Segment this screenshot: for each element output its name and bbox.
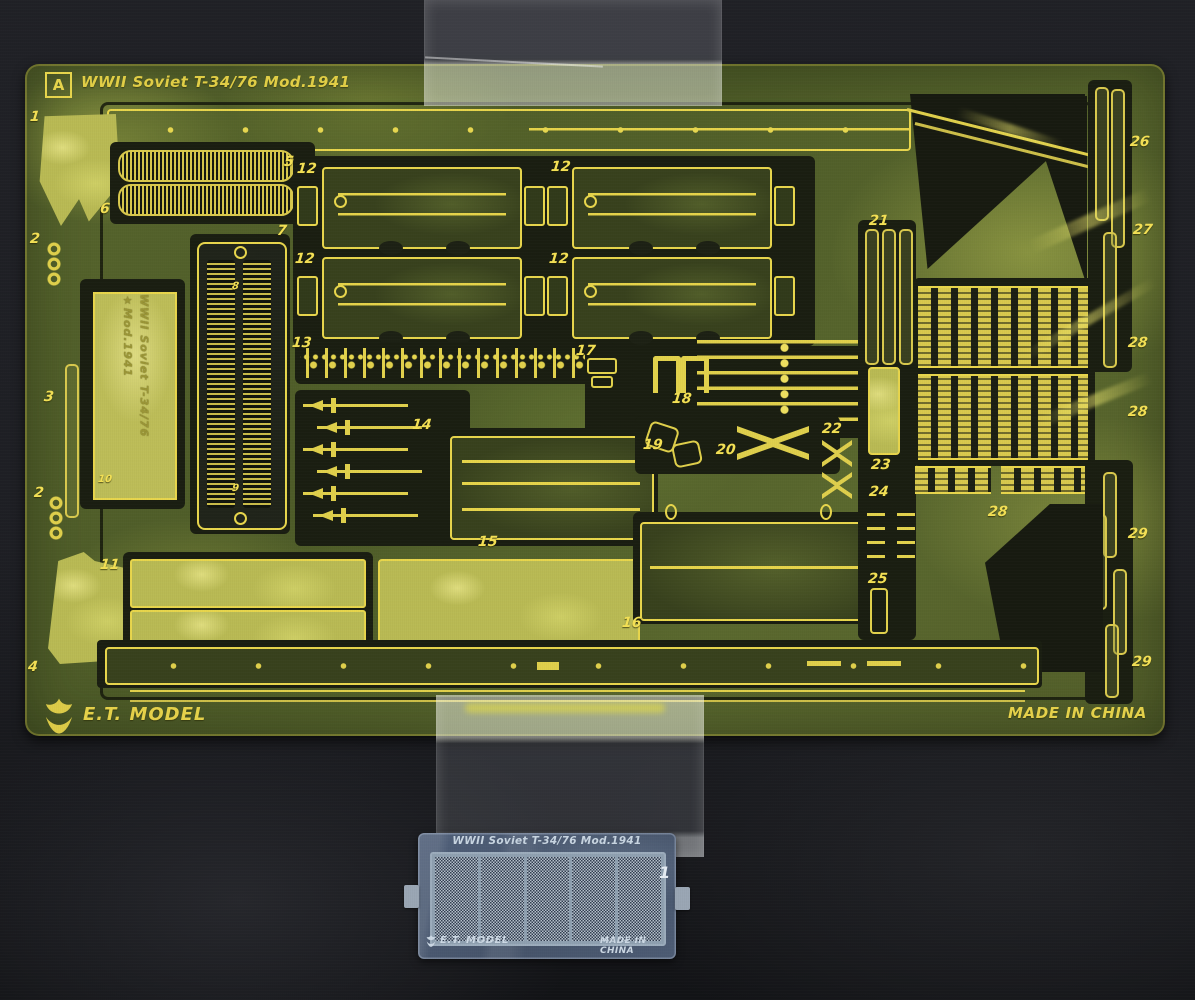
hinge-bracket-part bbox=[774, 186, 795, 226]
part-number-label: 21 bbox=[868, 213, 889, 229]
track-grouser-strips-part bbox=[1001, 466, 1087, 494]
part-number-label: 12 bbox=[550, 159, 571, 175]
grille-slats bbox=[243, 260, 271, 508]
part-number-label: 14 bbox=[411, 417, 432, 433]
part-number-label: 12 bbox=[294, 251, 315, 267]
track-grouser-strips-part bbox=[915, 466, 991, 494]
hatch-panel-part bbox=[450, 436, 654, 540]
part-number-label: 1 bbox=[659, 863, 670, 882]
part-number-label: 4 bbox=[27, 659, 38, 675]
made-in-text: MADE IN CHINA bbox=[600, 936, 676, 956]
edge-strip-part bbox=[1111, 89, 1125, 248]
part-number-label: 26 bbox=[1129, 134, 1150, 150]
engine-deck-door-part bbox=[322, 257, 522, 339]
part-number-label: 17 bbox=[575, 343, 596, 359]
engine-deck-door-part bbox=[572, 167, 772, 249]
nameplate-part: WWII Soviet T-34/76 ★Mod.1941 bbox=[93, 292, 177, 500]
fret-a-title: WWII Soviet T-34/76 Mod.1941 bbox=[81, 73, 350, 91]
grille-ring bbox=[234, 246, 247, 259]
engine-deck-door-part bbox=[322, 167, 522, 249]
part-number-label: 27 bbox=[1132, 222, 1153, 238]
made-in-text: MADE IN CHINA bbox=[1008, 704, 1147, 722]
latch-handle-part bbox=[303, 404, 408, 407]
radiator-slat-part bbox=[118, 184, 294, 216]
hinge-bracket-part bbox=[297, 186, 318, 226]
sheet-letter: A bbox=[53, 76, 65, 94]
part-number-label: 29 bbox=[1127, 526, 1148, 542]
part-number-label: 8 bbox=[231, 281, 239, 292]
part-number-label: 6 bbox=[99, 201, 110, 217]
part-number-label: 1 bbox=[29, 109, 40, 125]
grille-slats bbox=[207, 260, 235, 508]
part-number-label: 25 bbox=[867, 571, 888, 587]
photo-stage: A WWII Soviet T-34/76 Mod.1941 WWII Sovi… bbox=[0, 0, 1195, 1000]
part-number-label: 13 bbox=[291, 335, 312, 351]
part-number-label: 19 bbox=[642, 437, 663, 453]
hinge-bracket-part bbox=[547, 186, 568, 226]
latch-handle-part bbox=[303, 448, 408, 451]
track-grouser-strips-part bbox=[918, 286, 1088, 368]
narrow-strip-part bbox=[899, 229, 913, 365]
u-bracket-part bbox=[653, 356, 681, 393]
nameplate-text: WWII Soviet T-34/76 ★Mod.1941 bbox=[119, 294, 152, 498]
hull-panel-part bbox=[640, 522, 887, 621]
edge-strip-part bbox=[1105, 624, 1119, 698]
small-rod-part bbox=[870, 588, 888, 634]
clip-stack-part bbox=[867, 504, 885, 562]
latch-handle-part bbox=[303, 492, 408, 495]
part-number-label: 28 bbox=[1127, 335, 1148, 351]
sheet-letter-box: A bbox=[45, 72, 72, 98]
fret-b-tab bbox=[675, 887, 690, 910]
grille-ring bbox=[234, 512, 247, 525]
mesh-grille-part bbox=[430, 852, 666, 946]
latch-handle-part bbox=[317, 426, 422, 429]
narrow-strip-part bbox=[882, 229, 896, 365]
part-number-label: 15 bbox=[477, 534, 498, 550]
part-number-label: 28 bbox=[1127, 404, 1148, 420]
fret-b-tab bbox=[404, 885, 419, 908]
brand-text: E.T. MODEL bbox=[83, 704, 206, 725]
small-plate-part bbox=[868, 367, 900, 455]
clamp-row-part bbox=[300, 348, 592, 378]
part-number-label: 3 bbox=[43, 389, 54, 405]
tape-top bbox=[424, 0, 722, 106]
fret-b-title: WWII Soviet T-34/76 Mod.1941 bbox=[432, 835, 662, 847]
fret-a: A WWII Soviet T-34/76 Mod.1941 WWII Sovi… bbox=[25, 64, 1165, 736]
part-number-label: 20 bbox=[715, 442, 736, 458]
narrow-strip-part bbox=[65, 364, 79, 518]
fender-panel-part bbox=[378, 559, 640, 653]
engine-deck-door-part bbox=[572, 257, 772, 339]
brand-text: E.T. MODEL bbox=[440, 935, 509, 946]
mesh-panel bbox=[481, 857, 524, 941]
et-model-logo-icon bbox=[424, 934, 438, 948]
mesh-panel bbox=[527, 857, 570, 941]
fender-strip-part bbox=[130, 559, 366, 608]
narrow-strip-part bbox=[865, 229, 879, 365]
part-number-label: 2 bbox=[29, 231, 40, 247]
side-skirt-strip-part bbox=[105, 647, 1039, 685]
latch-handle-part bbox=[317, 470, 422, 473]
lift-hook-part bbox=[665, 504, 677, 520]
edge-strip-part bbox=[1095, 87, 1109, 221]
part-number-label: 24 bbox=[868, 484, 889, 500]
part-number-label: 7 bbox=[276, 223, 287, 239]
part-number-label: 5 bbox=[283, 154, 294, 170]
star-icon: ★ bbox=[121, 294, 134, 308]
part-number-label: 12 bbox=[548, 251, 569, 267]
radiator-slat-part bbox=[118, 150, 294, 182]
fret-b: WWII Soviet T-34/76 Mod.1941 1 E.T. MODE… bbox=[418, 833, 676, 959]
mesh-panel bbox=[572, 857, 615, 941]
part-number-label: 2 bbox=[33, 485, 44, 501]
part-number-label: 22 bbox=[821, 421, 842, 437]
part-number-label: 10 bbox=[97, 474, 112, 485]
ring-parts bbox=[39, 242, 69, 286]
hinge-bracket-part bbox=[524, 186, 545, 226]
hinge-bracket-part bbox=[774, 276, 795, 316]
part-number-label: 16 bbox=[621, 615, 642, 631]
part-number-label: 23 bbox=[870, 457, 891, 473]
part-number-label: 28 bbox=[987, 504, 1008, 520]
lift-hook-part bbox=[820, 504, 832, 520]
part-number-label: 12 bbox=[296, 161, 317, 177]
mesh-panel bbox=[435, 857, 478, 941]
hinge-bracket-part bbox=[297, 276, 318, 316]
part-number-label: 29 bbox=[1131, 654, 1152, 670]
small-bracket-part bbox=[587, 358, 617, 374]
hinge-bracket-part bbox=[524, 276, 545, 316]
part-number-label: 11 bbox=[99, 557, 120, 573]
et-model-logo-icon bbox=[38, 695, 80, 737]
latch-handle-part bbox=[313, 514, 418, 517]
part-number-label: 9 bbox=[231, 483, 239, 494]
part-number-label: 18 bbox=[671, 391, 692, 407]
hinge-bracket-part bbox=[547, 276, 568, 316]
clip-stack-part bbox=[897, 504, 915, 562]
mesh-panel bbox=[618, 857, 661, 941]
small-bracket-part bbox=[591, 376, 613, 388]
